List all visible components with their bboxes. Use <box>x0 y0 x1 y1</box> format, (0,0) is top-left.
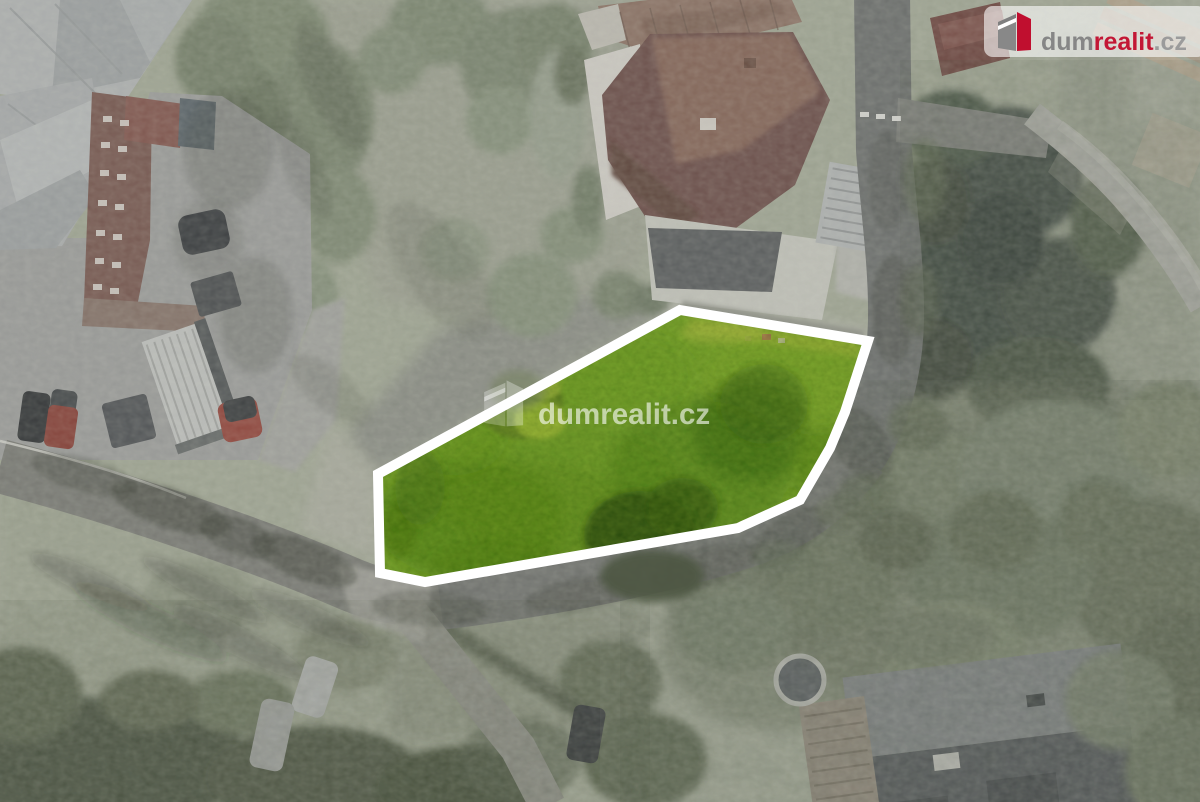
svg-text:dumrealit.cz: dumrealit.cz <box>1041 28 1187 56</box>
svg-text:dumrealit.cz: dumrealit.cz <box>538 398 710 431</box>
